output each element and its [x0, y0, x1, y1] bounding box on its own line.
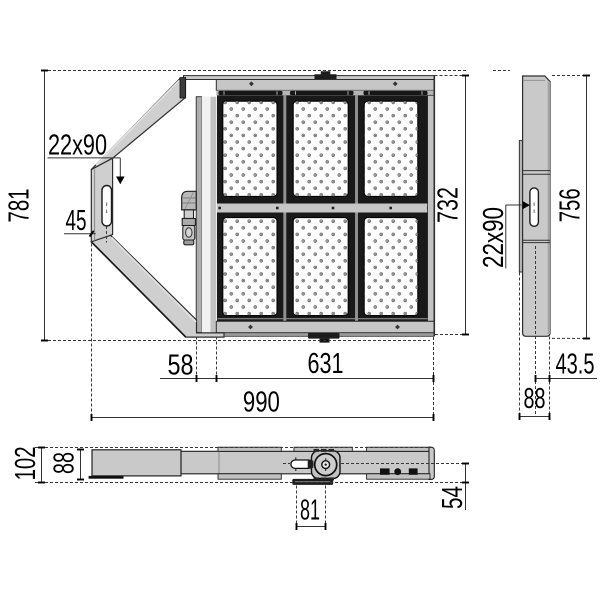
- svg-text:781: 781: [4, 189, 36, 223]
- svg-text:43.5: 43.5: [556, 348, 595, 380]
- svg-text:88: 88: [49, 452, 81, 474]
- svg-text:45: 45: [66, 205, 87, 237]
- svg-text:756: 756: [555, 188, 587, 222]
- svg-text:58: 58: [168, 350, 194, 382]
- svg-text:732: 732: [433, 187, 465, 223]
- svg-text:102: 102: [10, 446, 42, 480]
- svg-text:22x90: 22x90: [48, 130, 107, 162]
- svg-text:88: 88: [524, 383, 546, 415]
- svg-text:631: 631: [308, 348, 344, 380]
- svg-text:54: 54: [437, 486, 469, 509]
- svg-text:990: 990: [243, 387, 280, 419]
- svg-text:81: 81: [300, 495, 320, 527]
- svg-text:22x90: 22x90: [478, 207, 510, 268]
